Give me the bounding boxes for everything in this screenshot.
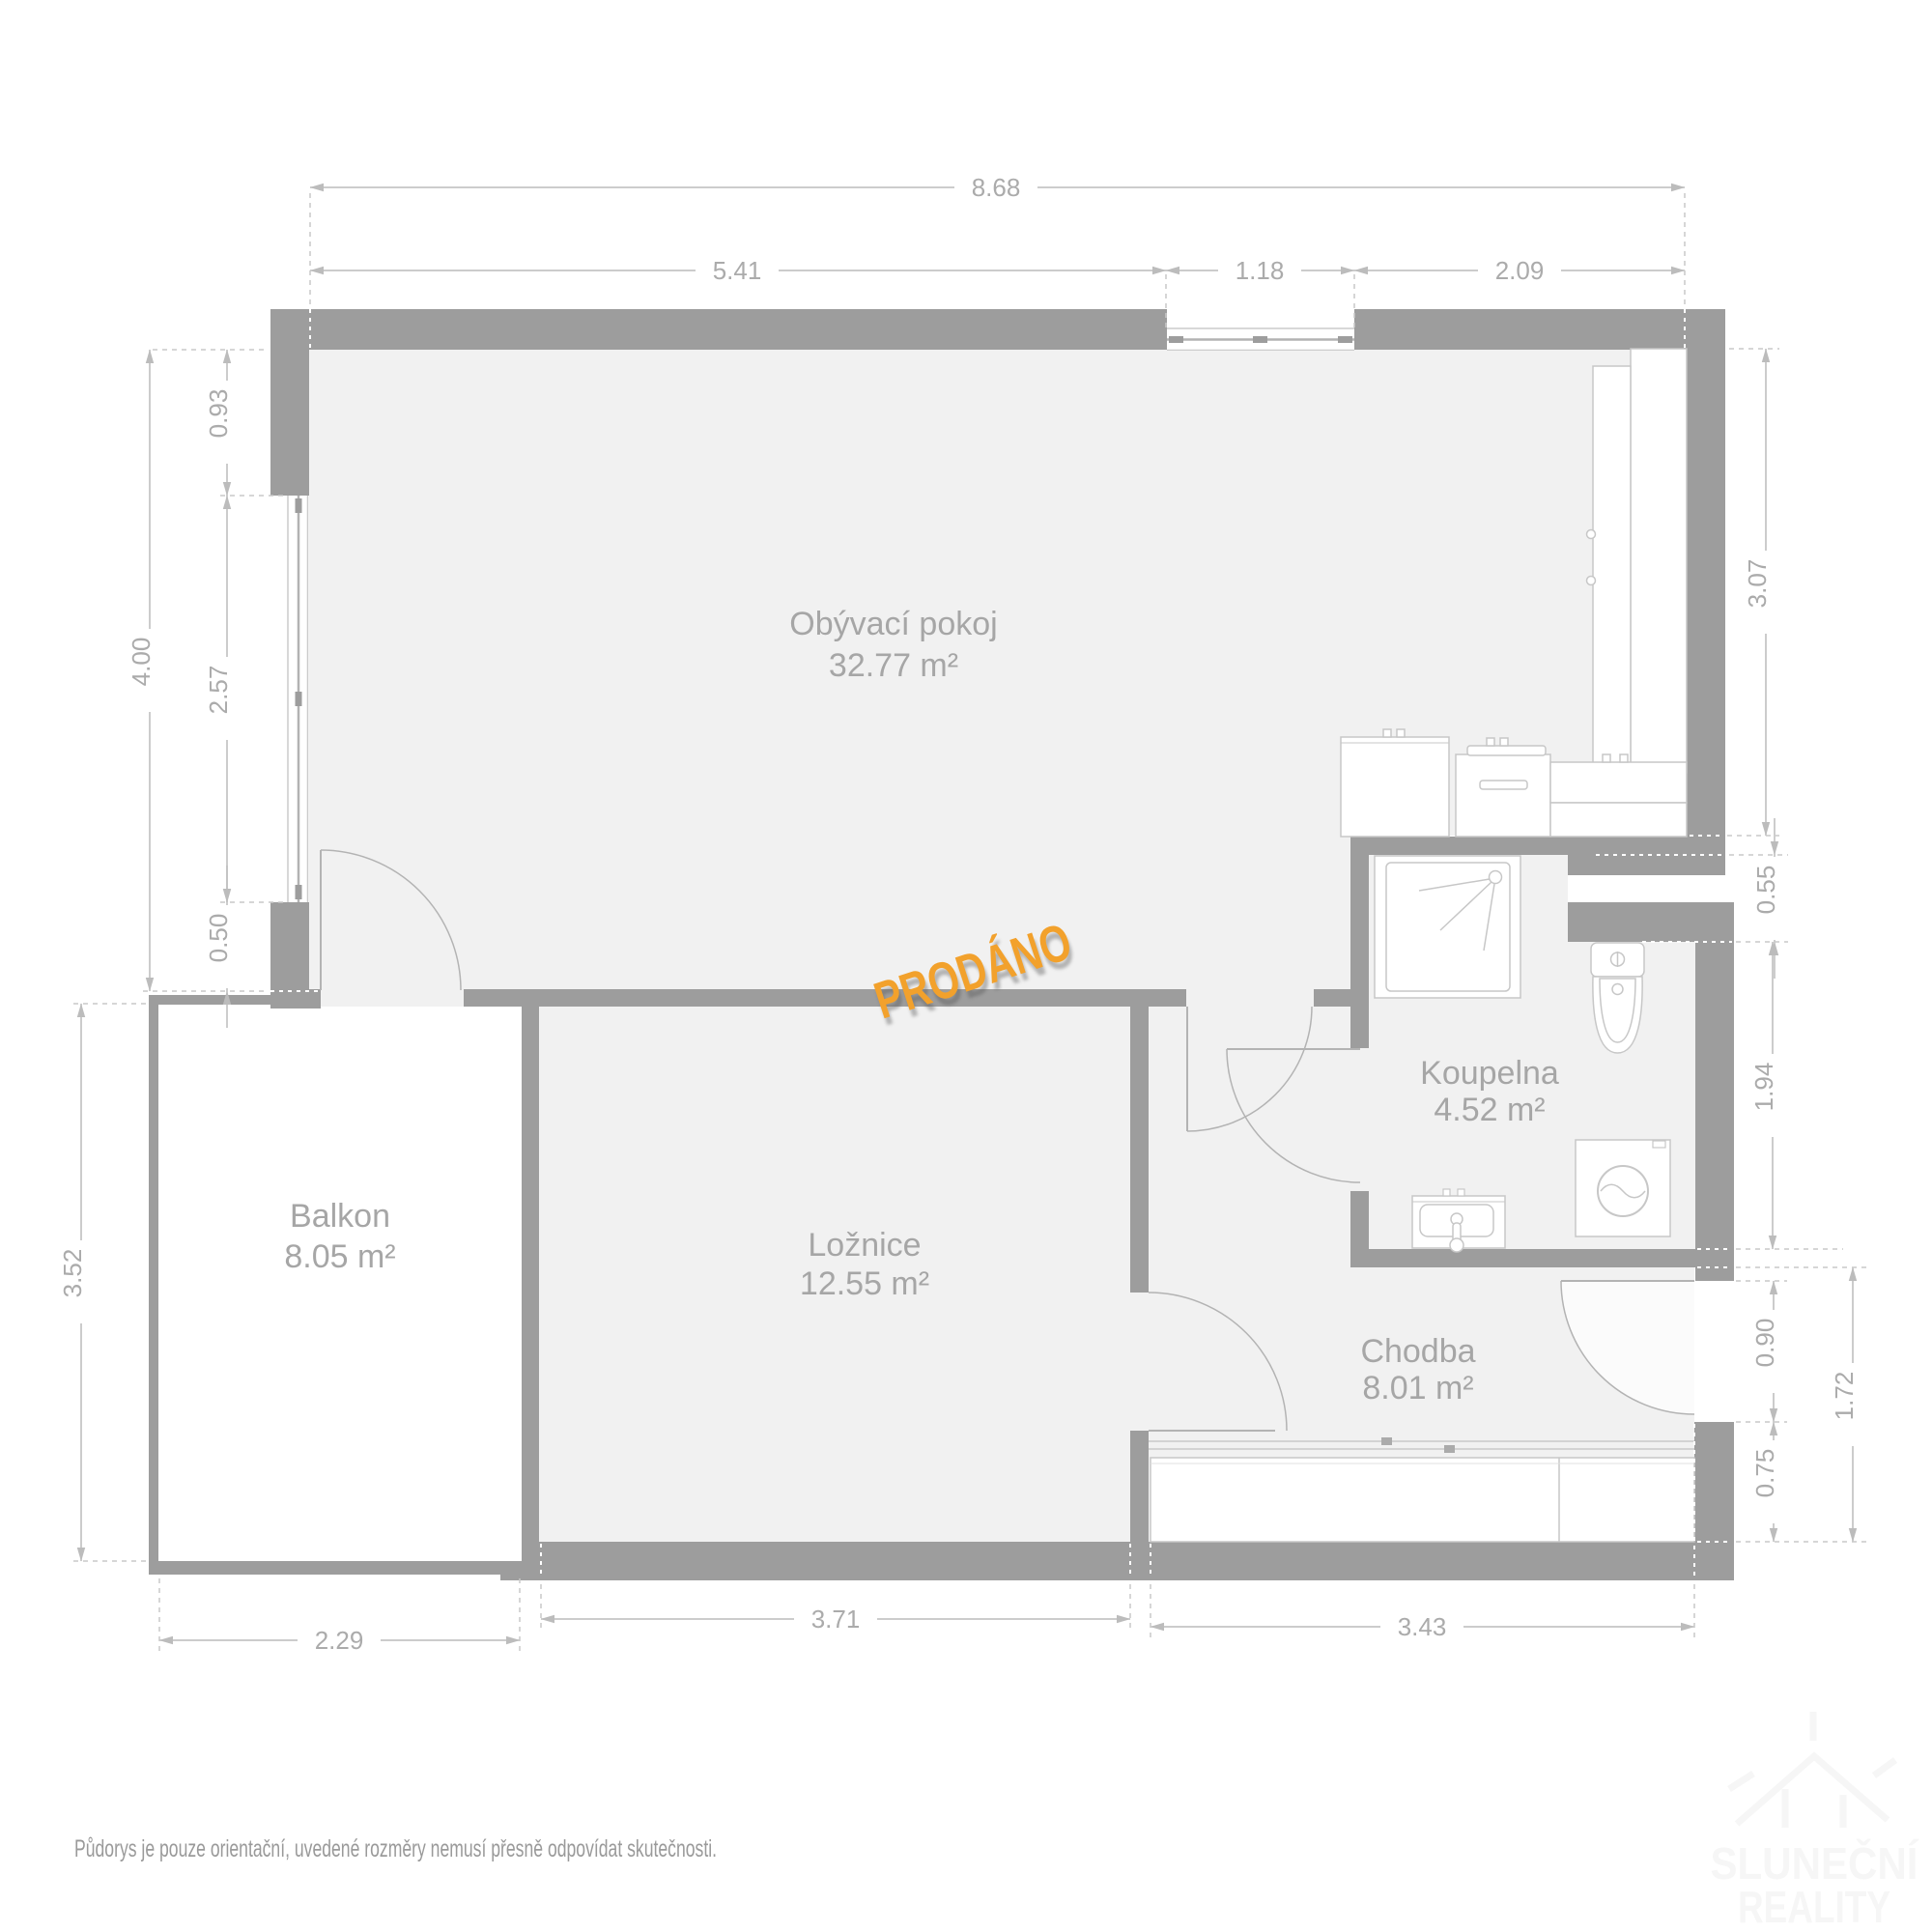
svg-text:4.52 m²: 4.52 m² (1434, 1092, 1545, 1128)
svg-text:0.90: 0.90 (1750, 1319, 1779, 1368)
svg-text:Balkon: Balkon (290, 1198, 390, 1235)
svg-text:0.50: 0.50 (204, 914, 233, 963)
svg-text:Koupelna: Koupelna (1420, 1055, 1559, 1092)
svg-text:0.75: 0.75 (1750, 1449, 1779, 1498)
svg-text:8.68: 8.68 (972, 173, 1021, 202)
svg-text:3.71: 3.71 (811, 1605, 861, 1634)
svg-text:1.18: 1.18 (1236, 256, 1285, 285)
svg-text:4.00: 4.00 (127, 638, 156, 687)
svg-text:8.01 m²: 8.01 m² (1362, 1370, 1473, 1406)
svg-text:Půdorys je pouze orientační, u: Půdorys je pouze orientační, uvedené roz… (74, 1835, 717, 1862)
svg-text:Chodba: Chodba (1360, 1333, 1475, 1370)
svg-text:8.05 m²: 8.05 m² (284, 1238, 395, 1275)
svg-text:12.55 m²: 12.55 m² (800, 1265, 929, 1302)
svg-text:Obývací pokoj: Obývací pokoj (789, 606, 997, 642)
svg-text:2.29: 2.29 (315, 1626, 364, 1655)
svg-text:5.41: 5.41 (713, 256, 762, 285)
svg-text:2.09: 2.09 (1495, 256, 1545, 285)
svg-text:3.52: 3.52 (58, 1249, 87, 1298)
svg-text:1.94: 1.94 (1749, 1063, 1778, 1112)
svg-text:3.07: 3.07 (1743, 559, 1772, 609)
svg-text:REALITY: REALITY (1738, 1882, 1890, 1932)
svg-text:3.43: 3.43 (1398, 1612, 1447, 1641)
svg-text:32.77 m²: 32.77 m² (829, 647, 958, 684)
svg-text:1.72: 1.72 (1830, 1372, 1859, 1421)
svg-text:0.93: 0.93 (204, 389, 233, 439)
svg-text:2.57: 2.57 (204, 666, 233, 715)
svg-text:0.55: 0.55 (1751, 866, 1780, 915)
svg-text:Ložnice: Ložnice (808, 1227, 921, 1264)
